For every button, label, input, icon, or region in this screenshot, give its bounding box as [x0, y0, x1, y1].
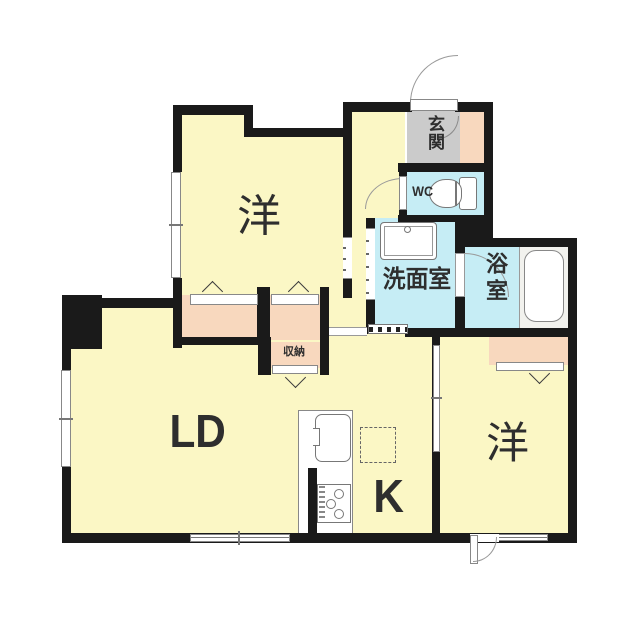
- wall: [173, 105, 182, 172]
- stove-burner-3: [334, 509, 344, 519]
- toilet-bowl: [429, 179, 462, 208]
- kitchen-bedroom-sliding-door: [433, 345, 440, 452]
- wall: [244, 128, 352, 137]
- wall: [455, 238, 577, 247]
- sliding-window: [190, 534, 290, 542]
- bathroom-door-leaf: [455, 253, 465, 297]
- kitchen-label: K: [373, 473, 404, 519]
- wall: [173, 105, 253, 115]
- shoe-cabinet: [460, 110, 484, 165]
- toilet-door-leaf: [399, 176, 407, 210]
- wall: [568, 238, 577, 340]
- sliding-door-tick: [431, 397, 442, 399]
- wall: [343, 102, 412, 112]
- refrigerator-outline: [360, 427, 396, 463]
- bedroom-right-label: 洋: [486, 423, 529, 466]
- wall: [258, 337, 271, 375]
- entrance-door-leaf: [410, 99, 458, 111]
- bedroom-right-door-arc: [473, 537, 497, 562]
- wall: [320, 287, 329, 375]
- hall-threshold: [329, 327, 367, 336]
- window-tick: [59, 418, 73, 420]
- wall: [62, 298, 182, 308]
- washroom-accordion-door: [368, 324, 408, 334]
- washroom-label: 洗面室: [383, 268, 451, 292]
- basin-faucet: [404, 226, 411, 233]
- kitchen-sink: [315, 414, 351, 462]
- floor-plan: 洋 洋 LD K 玄関 WC 洗面室 浴室 収納: [0, 0, 640, 640]
- bedroom-right-closet-folding-door: [496, 362, 564, 371]
- window-tick: [169, 224, 183, 226]
- bathtub: [524, 250, 564, 322]
- window-line: [191, 537, 289, 538]
- window-tick: [238, 531, 240, 545]
- bedroom-top-label: 洋: [237, 195, 281, 239]
- stove-burner-2: [326, 499, 336, 509]
- wall: [568, 328, 577, 543]
- closet-left-folding-door: [190, 294, 258, 305]
- entrance-door-arc: [410, 55, 458, 103]
- wall: [484, 102, 493, 222]
- washroom-sliding-door: [366, 228, 375, 300]
- wall-kitchen-stub: [308, 468, 317, 537]
- toilet-seat-line: [455, 181, 457, 206]
- window-line: [498, 537, 547, 538]
- bedroom-top-sliding-door: [343, 237, 352, 279]
- bedroom-right-closet: [489, 334, 570, 365]
- wall: [173, 337, 270, 345]
- wall: [398, 163, 493, 172]
- exterior-notch: [244, 85, 352, 128]
- kitchen-sink-notch: [313, 428, 320, 446]
- storage-label: 収納: [283, 347, 305, 358]
- living-dining-label: LD: [169, 408, 225, 454]
- stove-burner-1: [334, 489, 344, 499]
- stove-grill: [319, 486, 325, 521]
- toilet-label: WC: [412, 184, 433, 198]
- wall: [440, 328, 493, 337]
- entrance-label: 玄関: [426, 115, 443, 151]
- bathroom-label: 浴室: [484, 252, 506, 306]
